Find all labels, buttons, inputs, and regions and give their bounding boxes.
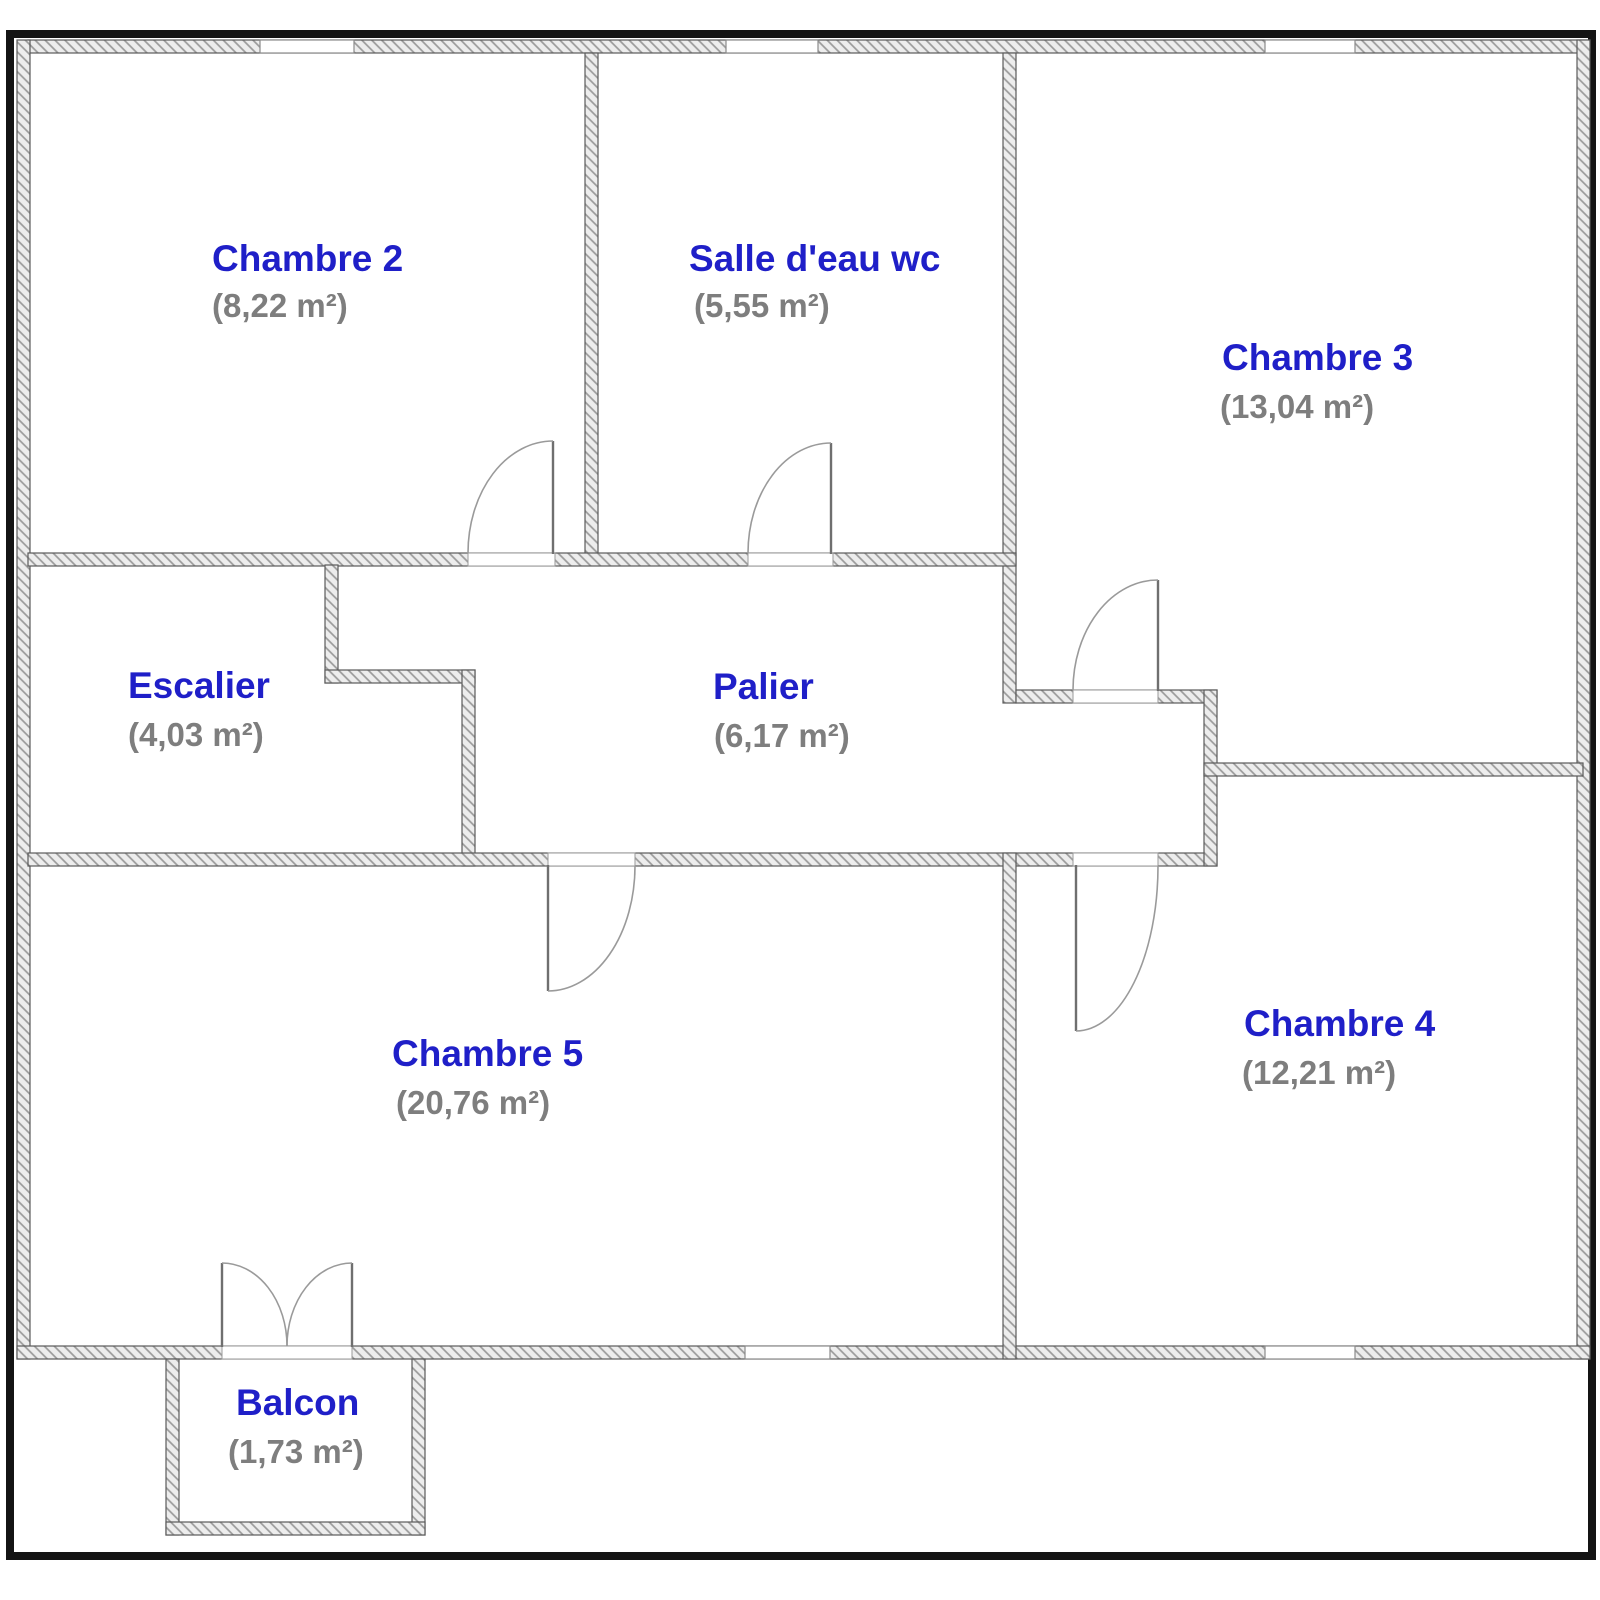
- window-salledeau-top: [726, 40, 818, 53]
- floor-plan: Chambre 2 (8,22 m²) Salle d'eau wc (5,55…: [0, 0, 1600, 1600]
- room-area-chambre5: (20,76 m²): [396, 1084, 550, 1121]
- door-threshold-chambre3: [1073, 690, 1158, 703]
- floor-plan-canvas: Chambre 2 (8,22 m²) Salle d'eau wc (5,55…: [0, 0, 1600, 1600]
- door-arc-chambre4: [1076, 866, 1158, 1031]
- wall-escalier-step-vertical-lower: [462, 670, 475, 866]
- door-threshold-chambre5: [548, 853, 635, 866]
- room-label-chambre4: Chambre 4: [1244, 1003, 1436, 1044]
- door-arc-chambre3: [1073, 580, 1158, 690]
- room-area-chambre2: (8,22 m²): [212, 287, 348, 324]
- door-arc-balcony-right: [287, 1263, 352, 1346]
- wall-left: [17, 40, 30, 1359]
- wall-chambre3-chambre4-divider: [1204, 763, 1583, 776]
- wall-chambre2-salledeau-divider: [585, 53, 598, 565]
- room-area-balcon: (1,73 m²): [228, 1433, 364, 1470]
- door-threshold-salledeau: [748, 553, 833, 566]
- wall-salledeau-chambre3-divider: [1003, 53, 1016, 703]
- window-chambre4-bottom: [1265, 1346, 1355, 1359]
- door-threshold-chambre4: [1073, 853, 1158, 866]
- wall-chambre5-chambre4-divider: [1003, 853, 1016, 1359]
- room-label-balcon: Balcon: [236, 1382, 359, 1423]
- room-area-salledeau: (5,55 m²): [694, 287, 830, 324]
- wall-balcony-left: [166, 1359, 179, 1535]
- wall-escalier-step-vertical-upper: [325, 565, 338, 683]
- room-label-escalier: Escalier: [128, 665, 270, 706]
- window-chambre5-bottom: [745, 1346, 830, 1359]
- door-arc-salledeau: [748, 443, 831, 553]
- window-chambre2-top: [260, 40, 354, 53]
- wall-balcony-right: [412, 1359, 425, 1535]
- window-chambre3-top: [1265, 40, 1355, 53]
- room-label-chambre2: Chambre 2: [212, 238, 403, 279]
- wall-right: [1577, 40, 1590, 1359]
- doors: [222, 441, 1158, 1359]
- room-area-palier: (6,17 m²): [714, 717, 850, 754]
- room-label-salledeau: Salle d'eau wc: [689, 238, 940, 279]
- door-arc-balcony-left: [222, 1263, 287, 1346]
- room-label-chambre3: Chambre 3: [1222, 337, 1413, 378]
- room-area-escalier: (4,03 m²): [128, 716, 264, 753]
- room-label-palier: Palier: [713, 666, 814, 707]
- wall-balcony-bottom: [166, 1522, 425, 1535]
- door-arc-chambre5: [548, 866, 635, 991]
- door-threshold-chambre2: [468, 553, 555, 566]
- door-arc-chambre2: [468, 441, 553, 553]
- room-area-chambre4: (12,21 m²): [1242, 1054, 1396, 1091]
- room-area-chambre3: (13,04 m²): [1220, 388, 1374, 425]
- wall-escalier-step-horizontal: [325, 670, 475, 683]
- room-label-chambre5: Chambre 5: [392, 1033, 583, 1074]
- door-threshold-balcony: [222, 1346, 352, 1359]
- wall-palier-bump-right: [1204, 690, 1217, 866]
